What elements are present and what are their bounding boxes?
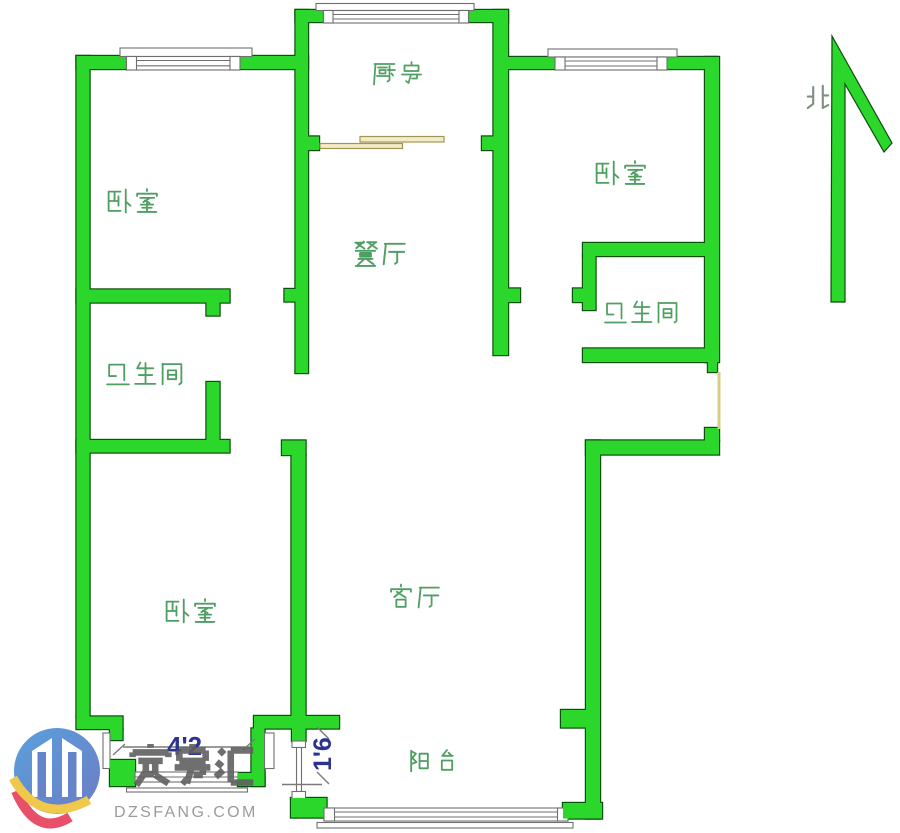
svg-text:DZSFANG.COM: DZSFANG.COM [114,804,258,821]
svg-text:4'2: 4'2 [167,731,202,761]
svg-text:1'6: 1'6 [309,737,337,771]
